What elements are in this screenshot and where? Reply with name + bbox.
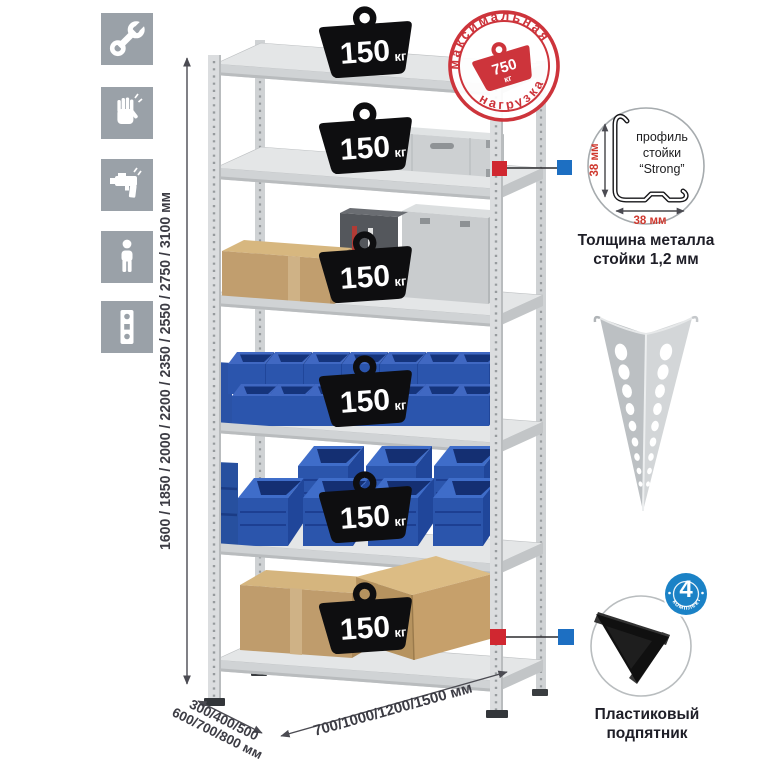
- gloves-icon: [101, 87, 153, 139]
- weight-shelf-2: 150 кг: [318, 102, 415, 175]
- profile-caption-2: стойки 1,2 мм: [593, 251, 698, 268]
- product-diagram: 1600 / 1850 / 2000 / 2200 / 2350 / 2550 …: [0, 0, 765, 765]
- badge-value: 4: [679, 576, 693, 603]
- foot-caption-2: подпятник: [606, 725, 687, 742]
- svg-text:кг: кг: [394, 624, 408, 640]
- profile-vertical-dim: 38 мм: [589, 143, 601, 176]
- metal-post-image: [595, 317, 697, 511]
- svg-text:кг: кг: [394, 397, 408, 413]
- profile-detail: 38 мм 38 мм профиль стойки “Strong” Толщ…: [578, 108, 715, 268]
- profile-horizontal-dim: 38 мм: [633, 215, 666, 227]
- person-icon: [101, 231, 153, 283]
- height-dimension-label: 1600 / 1850 / 2000 / 2200 / 2350 / 2550 …: [157, 192, 174, 550]
- svg-text:кг: кг: [394, 273, 408, 289]
- svg-text:кг: кг: [394, 48, 408, 64]
- profile-label-2: стойки: [643, 146, 681, 160]
- profile-caption-1: Толщина металла: [578, 232, 715, 249]
- svg-text:150: 150: [339, 383, 391, 419]
- profile-label-3: “Strong”: [639, 162, 684, 176]
- svg-text:кг: кг: [394, 513, 408, 529]
- height-dimension: 1600 / 1850 / 2000 / 2200 / 2350 / 2550 …: [157, 58, 187, 684]
- drill-icon: [101, 159, 153, 211]
- assembly-icons: [101, 13, 153, 353]
- max-load-stamp: максимальная нагрузка 750 кг: [433, 0, 573, 134]
- svg-text:150: 150: [339, 130, 391, 166]
- foot-caption-1: Пластиковый: [595, 706, 700, 723]
- profile-label-1: профиль: [636, 130, 688, 144]
- svg-text:150: 150: [339, 499, 391, 535]
- wrench-icon: [101, 13, 153, 65]
- svg-text:кг: кг: [394, 144, 408, 160]
- svg-text:150: 150: [339, 34, 391, 70]
- foot-callout-connector: [490, 629, 574, 645]
- kit-badge: в комплекте 4: [663, 571, 709, 617]
- svg-text:150: 150: [339, 610, 391, 646]
- width-label: 700/1000/1200/1500 мм: [312, 680, 475, 740]
- perforated-post-icon: [101, 301, 153, 353]
- svg-text:150: 150: [339, 259, 391, 295]
- weight-shelf-1: 150 кг: [318, 6, 415, 79]
- foot-detail: в комплекте 4 Пластиковый подпятник: [591, 571, 709, 742]
